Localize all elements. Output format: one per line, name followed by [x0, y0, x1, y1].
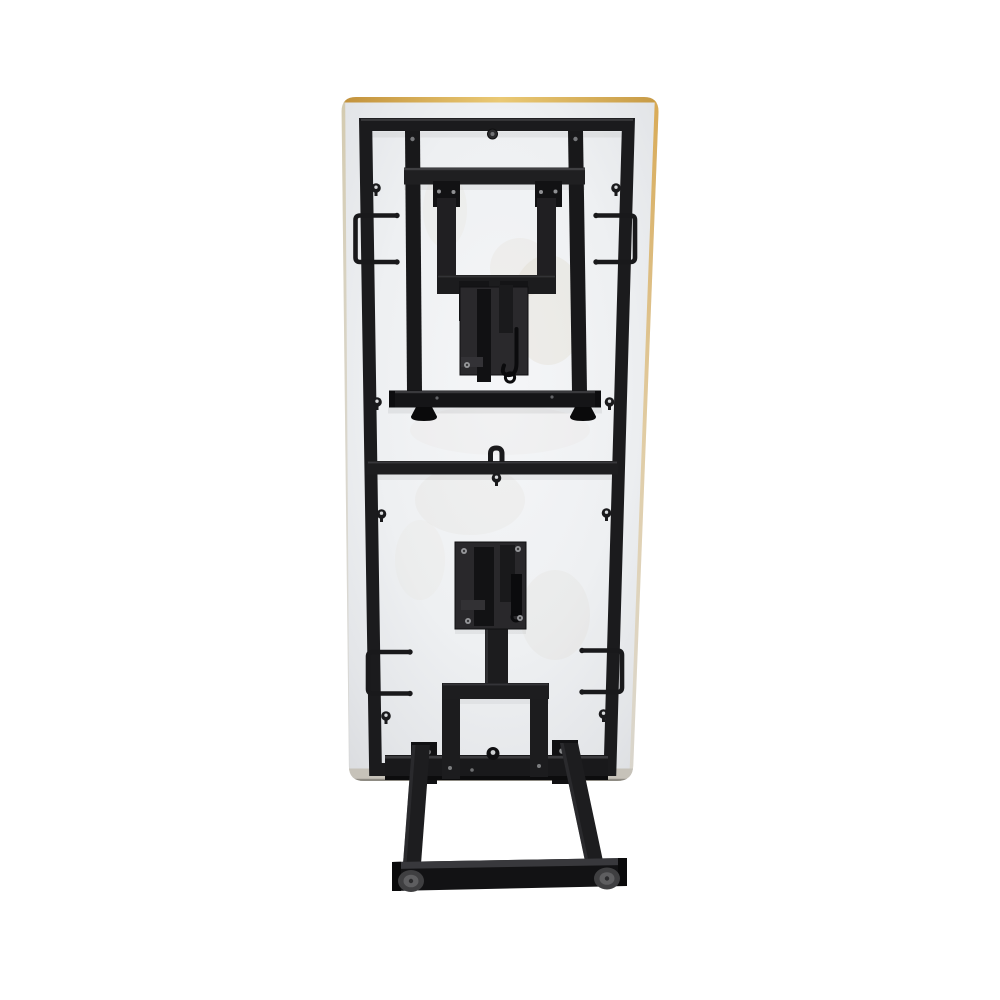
top-rail-center-screw — [488, 129, 498, 139]
lower-hinge-plate — [455, 542, 526, 629]
upper-hinge-plate — [460, 285, 528, 382]
floor-bar-foot-left — [398, 870, 424, 892]
plate-screw — [465, 618, 471, 624]
plate-screw — [464, 362, 470, 368]
floor-bar — [392, 858, 627, 891]
plate-screw — [515, 546, 521, 552]
lower-leg-column — [485, 626, 508, 688]
upper-leg-foot-bar — [389, 391, 601, 408]
plate-screw — [517, 615, 523, 621]
frame-top-highlight — [361, 119, 633, 121]
lock-eyelet — [487, 747, 500, 760]
plate-screw — [461, 548, 467, 554]
photo-canvas — [0, 0, 1000, 1000]
product-photo — [0, 0, 1000, 1000]
folding-table-underside — [0, 0, 1000, 1000]
floor-bar-foot-right — [594, 868, 620, 890]
edge-banding-top — [341, 97, 659, 103]
